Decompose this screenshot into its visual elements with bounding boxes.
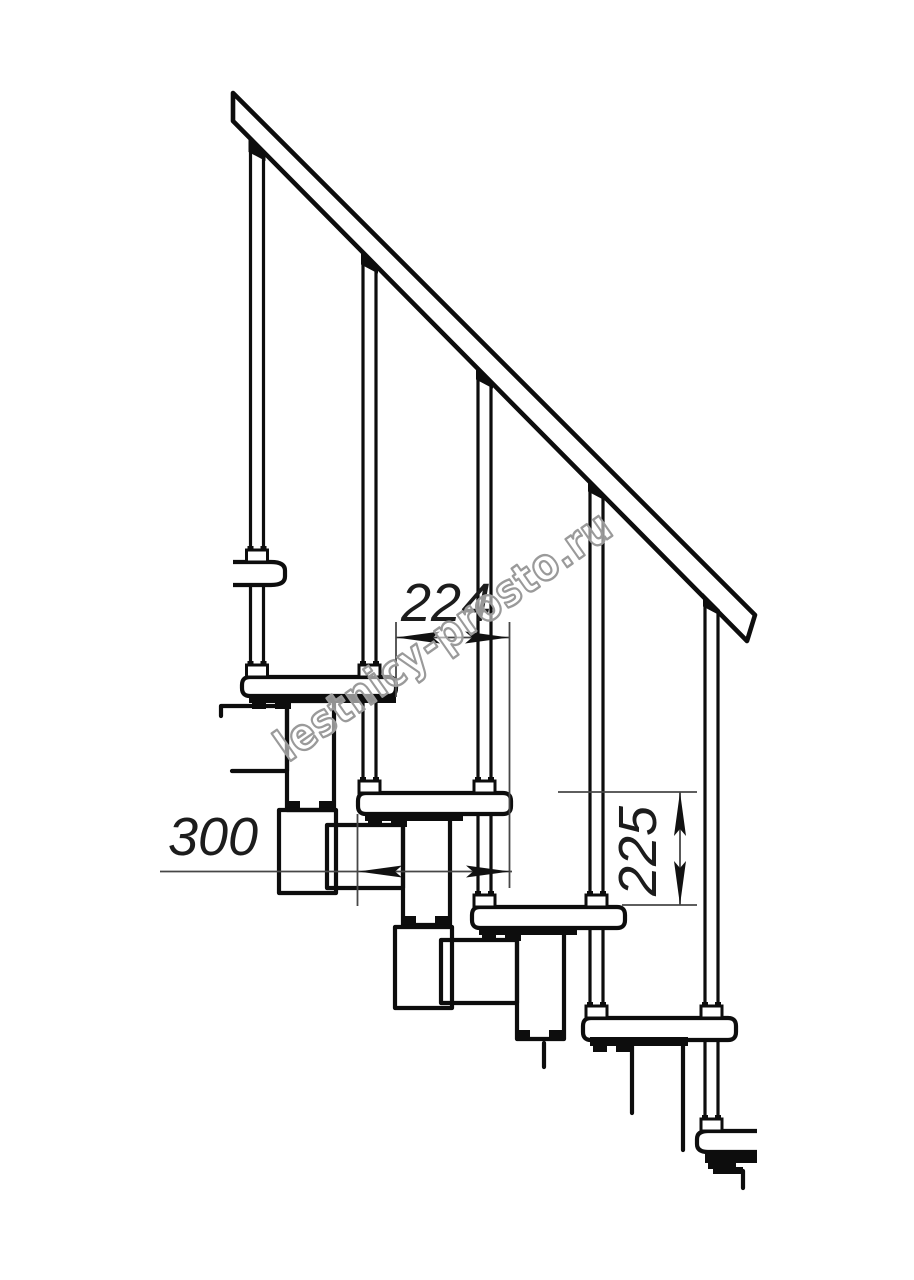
dimension-rise-225: 225 [558,792,697,905]
handrail-band [233,93,755,641]
mount-tab [616,1046,632,1052]
neck-clamp [515,1030,530,1039]
baluster-3 [478,379,491,908]
neck-clamp [549,1030,564,1039]
baluster-4 [590,491,603,1019]
mount-tab [252,703,266,709]
mount-tab [482,935,496,941]
neck-clamp [435,916,450,925]
tread-6-fragment [697,1131,757,1152]
dimension-label-225: 225 [608,805,668,897]
baluster-1 [251,151,264,676]
mount-plate-6 [705,1154,757,1163]
tread-4 [472,907,625,928]
bottom-step-bracket [713,1167,743,1174]
baluster-5 [705,606,718,1132]
module-body-3 [327,825,403,888]
mount-tab [505,935,521,941]
neck-clamp [401,916,416,925]
mount-tab [391,821,407,827]
mount-plate-3 [365,812,463,821]
tread-5 [583,1018,736,1040]
tread-mounting-plates [249,694,757,1163]
mount-tab [593,1046,607,1052]
staircase-drawing-page: 224 300 225 lestnicy-prosto.ru [0,0,914,1280]
modular-staircase-side-view: 224 300 225 lestnicy-prosto.ru [0,0,914,1280]
tread-3 [358,793,511,814]
dimension-label-300: 300 [168,807,258,867]
treads [233,562,757,1152]
mount-plate-5 [590,1037,688,1046]
mount-tab [275,703,291,709]
balusters [251,151,719,1131]
handrail [233,93,755,641]
tread-1-fragment [233,562,285,585]
watermark-text: lestnicy-prosto.ru [265,501,622,772]
module-neck-4 [517,932,564,1039]
mount-plate-4 [479,926,577,935]
mount-tab [368,821,382,827]
